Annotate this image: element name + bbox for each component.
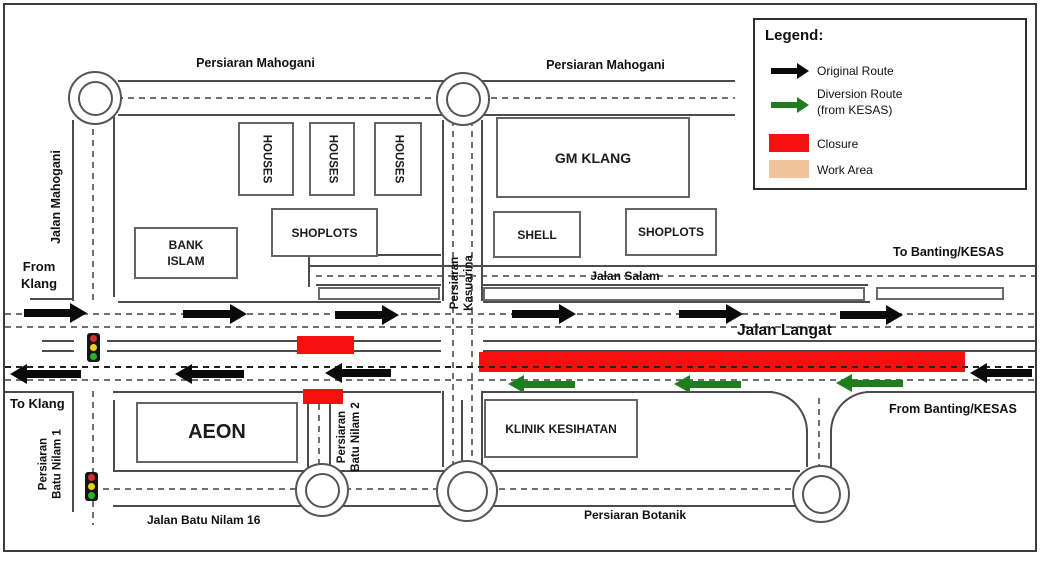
diversion-route-arrow bbox=[508, 375, 577, 393]
block-line bbox=[30, 298, 74, 300]
original-route-arrow-east bbox=[333, 305, 399, 325]
building-label: SHELL bbox=[517, 228, 556, 242]
building-label: HOUSES bbox=[392, 135, 404, 184]
road-centerline bbox=[95, 97, 735, 99]
road-line bbox=[806, 430, 808, 467]
road-centerline bbox=[318, 404, 320, 470]
building-gm-klang: GM KLANG bbox=[496, 117, 690, 198]
road-line bbox=[118, 80, 735, 82]
median-line bbox=[42, 350, 74, 352]
direction-from-banting-kesas: From Banting/KESAS bbox=[889, 402, 1017, 416]
original-route-arrow-west bbox=[325, 363, 393, 383]
road-line bbox=[118, 301, 441, 303]
road-line bbox=[307, 404, 309, 470]
work-area-swatch bbox=[769, 160, 809, 178]
road-label-persiaran-kasuarina: PersiaranKasuarina bbox=[448, 233, 478, 333]
legend-diversion-route-label: Diversion Route bbox=[817, 87, 902, 101]
divider-island bbox=[318, 287, 440, 300]
road-line bbox=[483, 301, 870, 303]
road-label-jalan-salam: Jalan Salam bbox=[565, 269, 685, 283]
road-line bbox=[329, 404, 331, 470]
building-shoplots: SHOPLOTS bbox=[625, 208, 717, 256]
original-route-arrow-east bbox=[510, 304, 576, 324]
original-route-arrow-east bbox=[677, 304, 743, 324]
building-label: HOUSES bbox=[326, 135, 338, 184]
building-houses: HOUSES bbox=[374, 122, 422, 196]
road-line bbox=[316, 284, 441, 286]
road-line bbox=[483, 284, 868, 286]
legend-original-route-label: Original Route bbox=[817, 64, 894, 78]
traffic-light-icon bbox=[87, 333, 100, 362]
original-route-arrow-west bbox=[970, 363, 1034, 383]
diversion-route-arrow-icon bbox=[769, 96, 809, 113]
road-label-persiaran-batu-nilam-1: PersiaranBatu Nilam 1 bbox=[37, 417, 67, 512]
road-line bbox=[113, 115, 115, 297]
road-line bbox=[118, 114, 735, 116]
closure-jalan-langat-westbound bbox=[479, 352, 965, 372]
legend-diversion-route-sublabel: (from KESAS) bbox=[817, 103, 892, 117]
roundabout bbox=[68, 71, 122, 125]
legend: Legend: Original Route Diversion Route (… bbox=[753, 18, 1027, 190]
road-centerline bbox=[92, 118, 94, 301]
building-houses: HOUSES bbox=[309, 122, 355, 196]
direction-to-klang: To Klang bbox=[10, 396, 65, 411]
diversion-route-arrow bbox=[674, 375, 743, 393]
road-label-jalan-batu-nilam-16: Jalan Batu Nilam 16 bbox=[147, 513, 260, 527]
original-route-arrow-west bbox=[10, 364, 83, 384]
building-label: HOUSES bbox=[260, 135, 272, 184]
building-bank-islam: BANKISLAM bbox=[134, 227, 238, 279]
road-line bbox=[481, 391, 483, 467]
building-label: AEON bbox=[188, 421, 246, 444]
roundabout bbox=[436, 460, 498, 522]
lane-line bbox=[5, 326, 1035, 328]
legend-closure-label: Closure bbox=[817, 137, 858, 151]
building-aeon: AEON bbox=[136, 402, 298, 463]
median-line bbox=[461, 400, 463, 466]
divider-island bbox=[876, 287, 1004, 300]
original-route-arrow-east bbox=[181, 304, 247, 324]
road-centerline bbox=[818, 398, 820, 467]
road-centerline bbox=[92, 391, 94, 525]
building-label: GM KLANG bbox=[555, 150, 631, 166]
median-line bbox=[107, 350, 441, 352]
direction-from-klang: FromKlang bbox=[16, 258, 62, 292]
median-line bbox=[107, 340, 441, 342]
road-label-persiaran-botanik: Persiaran Botanik bbox=[584, 508, 686, 522]
road-label-persiaran-mahogani: Persiaran Mahogani bbox=[528, 58, 683, 72]
road-label-persiaran-batu-nilam-2: PersiaranBatu Nilam 2 bbox=[335, 391, 363, 483]
legend-title: Legend: bbox=[765, 27, 823, 44]
original-route-arrow-east bbox=[22, 303, 87, 323]
building-houses: HOUSES bbox=[238, 122, 294, 196]
median-line bbox=[483, 340, 1035, 342]
roundabout bbox=[792, 465, 850, 523]
building-label: SHOPLOTS bbox=[638, 225, 704, 239]
divider-island bbox=[483, 287, 865, 301]
original-route-arrow-west bbox=[175, 364, 246, 384]
road-line bbox=[830, 430, 832, 467]
road-label-persiaran-mahogani: Persiaran Mahogani bbox=[178, 56, 333, 70]
road-line bbox=[113, 400, 115, 470]
building-shoplots: SHOPLOTS bbox=[271, 208, 378, 257]
building-label: BANKISLAM bbox=[167, 237, 204, 269]
lane-line bbox=[5, 366, 1035, 368]
closure-median bbox=[297, 336, 354, 354]
building-label: SHOPLOTS bbox=[291, 226, 357, 240]
diversion-route-arrow bbox=[836, 374, 905, 392]
original-route-arrow-east bbox=[838, 305, 903, 325]
building-shell: SHELL bbox=[493, 211, 581, 258]
road-label-jalan-mahogani: Jalan Mahogani bbox=[49, 141, 65, 253]
road-line bbox=[310, 265, 1035, 267]
original-route-arrow-icon bbox=[769, 62, 809, 79]
traffic-diversion-map: HOUSES HOUSES HOUSES GM KLANG SHOPLOTS S… bbox=[0, 0, 1040, 564]
road-line bbox=[113, 391, 303, 393]
direction-to-banting-kesas: To Banting/KESAS bbox=[893, 245, 1004, 259]
traffic-light-icon bbox=[85, 472, 98, 501]
road-line bbox=[72, 120, 74, 301]
road-line bbox=[442, 120, 444, 301]
road-line bbox=[72, 391, 74, 512]
building-klinik-kesihatan: KLINIK KESIHATAN bbox=[484, 399, 638, 458]
block-line bbox=[3, 391, 73, 393]
roundabout bbox=[436, 72, 490, 126]
road-line bbox=[481, 120, 483, 301]
road-label-jalan-langat: Jalan Langat bbox=[737, 322, 832, 340]
closure-swatch bbox=[769, 134, 809, 152]
building-label: KLINIK KESIHATAN bbox=[505, 422, 617, 436]
median-line bbox=[42, 340, 74, 342]
block-line bbox=[308, 254, 310, 287]
road-line bbox=[442, 391, 444, 467]
legend-work-area-label: Work Area bbox=[817, 163, 873, 177]
